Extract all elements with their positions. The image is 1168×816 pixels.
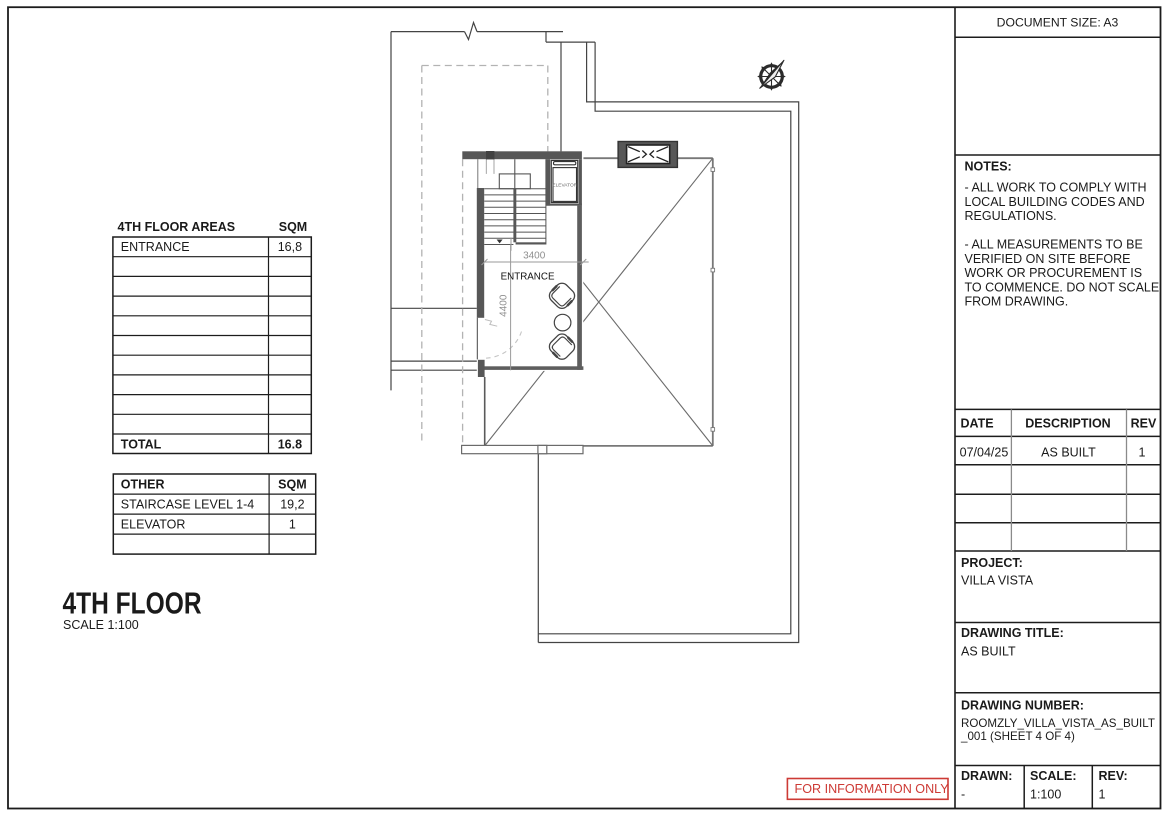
svg-text:SCALE:: SCALE:: [1030, 769, 1077, 783]
svg-text:VERIFIED ON SITE BEFORE: VERIFIED ON SITE BEFORE: [965, 252, 1131, 266]
svg-text:- ALL WORK TO COMPLY WITH: - ALL WORK TO COMPLY WITH: [965, 181, 1147, 195]
svg-text:REGULATIONS.: REGULATIONS.: [965, 209, 1057, 223]
svg-text:16,8: 16,8: [278, 240, 302, 254]
svg-text:NOTES:: NOTES:: [965, 159, 1012, 173]
svg-text:DRAWN:: DRAWN:: [961, 769, 1012, 783]
svg-text:PROJECT:: PROJECT:: [961, 556, 1023, 570]
svg-text:AS BUILT: AS BUILT: [1041, 446, 1096, 460]
svg-text:FOR INFORMATION ONLY: FOR INFORMATION ONLY: [795, 782, 950, 796]
svg-text:WORK OR PROCUREMENT IS: WORK OR PROCUREMENT IS: [965, 266, 1143, 280]
svg-text:1: 1: [1099, 787, 1106, 801]
svg-text:TO COMMENCE. DO NOT SCALE: TO COMMENCE. DO NOT SCALE: [965, 280, 1160, 294]
svg-text:FROM DRAWING.: FROM DRAWING.: [965, 295, 1069, 309]
svg-text:ROOMZLY_VILLA_VISTA_AS_BUILT: ROOMZLY_VILLA_VISTA_AS_BUILT: [961, 717, 1155, 730]
svg-text:DRAWING NUMBER:: DRAWING NUMBER:: [961, 699, 1084, 713]
svg-text:SCALE 1:100: SCALE 1:100: [63, 618, 139, 632]
svg-text:REV: REV: [1131, 417, 1157, 431]
svg-text:07/04/25: 07/04/25: [960, 446, 1009, 460]
svg-text:DATE: DATE: [960, 417, 993, 431]
svg-text:SQM: SQM: [278, 478, 306, 492]
svg-text:ELEVATOR: ELEVATOR: [552, 182, 577, 188]
svg-text:VILLA VISTA: VILLA VISTA: [961, 573, 1034, 587]
svg-text:16.8: 16.8: [278, 437, 302, 451]
svg-text:TOTAL: TOTAL: [121, 437, 162, 451]
svg-text:3400: 3400: [523, 250, 546, 261]
svg-text:1: 1: [1139, 446, 1146, 460]
svg-text:ELEVATOR: ELEVATOR: [121, 518, 186, 532]
svg-text:4TH FLOOR AREAS: 4TH FLOOR AREAS: [118, 220, 236, 234]
svg-text:_001 (SHEET 4 OF 4): _001 (SHEET 4 OF 4): [960, 730, 1075, 743]
svg-text:ENTRANCE: ENTRANCE: [121, 240, 190, 254]
svg-text:DESCRIPTION: DESCRIPTION: [1025, 417, 1110, 431]
svg-text:19,2: 19,2: [280, 498, 304, 512]
svg-text:1: 1: [289, 518, 296, 532]
svg-text:- ALL MEASUREMENTS TO BE: - ALL MEASUREMENTS TO BE: [965, 238, 1143, 252]
svg-text:1:100: 1:100: [1030, 787, 1061, 801]
svg-text:LOCAL BUILDING CODES AND: LOCAL BUILDING CODES AND: [965, 195, 1145, 209]
svg-text:SQM: SQM: [279, 220, 307, 234]
svg-text:AS BUILT: AS BUILT: [961, 644, 1016, 658]
svg-text:ENTRANCE: ENTRANCE: [501, 272, 555, 283]
svg-text:4400: 4400: [499, 294, 510, 317]
svg-text:DRAWING TITLE:: DRAWING TITLE:: [961, 626, 1064, 640]
svg-text:DOCUMENT SIZE: A3: DOCUMENT SIZE: A3: [997, 16, 1119, 30]
svg-text:4TH FLOOR: 4TH FLOOR: [63, 586, 202, 620]
svg-text:REV:: REV:: [1099, 769, 1128, 783]
svg-text:OTHER: OTHER: [121, 478, 165, 492]
svg-text:-: -: [961, 787, 965, 801]
svg-text:STAIRCASE LEVEL 1-4: STAIRCASE LEVEL 1-4: [121, 498, 254, 512]
